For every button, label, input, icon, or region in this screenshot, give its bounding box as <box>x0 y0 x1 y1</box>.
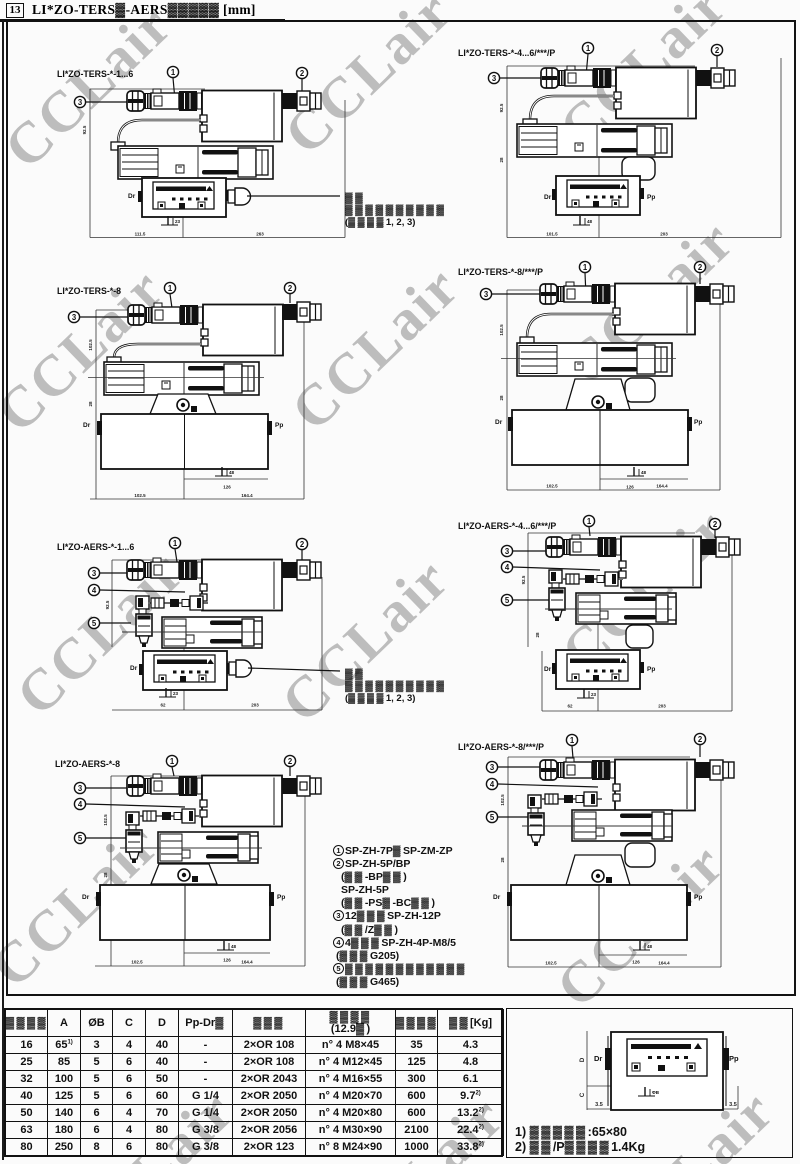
svg-text:Pp: Pp <box>694 894 702 901</box>
svg-text:3: 3 <box>78 784 83 793</box>
svg-text:126: 126 <box>223 485 231 490</box>
svg-text:2: 2 <box>300 69 305 78</box>
svg-text:1: 1 <box>570 736 575 745</box>
svg-text:5: 5 <box>92 619 97 628</box>
svg-text:Dr: Dr <box>82 894 90 901</box>
svg-text:LI*ZO-AERS-*-4...6/***/P: LI*ZO-AERS-*-4...6/***/P <box>458 521 556 531</box>
svg-text:1: 1 <box>583 263 588 272</box>
svg-text:2: 2 <box>698 263 703 272</box>
svg-text:203: 203 <box>251 703 259 708</box>
svg-text:28: 28 <box>500 857 505 863</box>
svg-text:Dr: Dr <box>128 193 136 200</box>
svg-text:Dr: Dr <box>130 665 138 672</box>
svg-text:23: 23 <box>175 219 181 224</box>
svg-text:LI*ZO-AERS-*-8: LI*ZO-AERS-*-8 <box>55 759 120 769</box>
svg-text:102.5: 102.5 <box>499 324 504 336</box>
svg-text:4: 4 <box>92 586 97 595</box>
svg-text:5: 5 <box>490 813 495 822</box>
svg-text:Pp: Pp <box>275 422 283 429</box>
svg-text:2: 2 <box>715 46 720 55</box>
svg-text:1: 1 <box>168 284 173 293</box>
svg-text:92.5: 92.5 <box>82 125 87 134</box>
svg-text:2: 2 <box>713 520 718 529</box>
svg-text:164.4: 164.4 <box>656 484 668 489</box>
svg-text:Dr: Dr <box>495 419 503 426</box>
svg-text:2: 2 <box>288 284 293 293</box>
svg-text:5: 5 <box>78 834 83 843</box>
svg-text:92.5: 92.5 <box>521 575 526 584</box>
svg-text:Pp: Pp <box>277 894 285 901</box>
svg-text:3: 3 <box>492 74 497 83</box>
svg-text:LI*ZO-TERS-*-1...6: LI*ZO-TERS-*-1...6 <box>57 69 133 79</box>
svg-text:92.5: 92.5 <box>499 103 504 112</box>
svg-text:2: 2 <box>300 540 305 549</box>
svg-text:LI*ZO-TERS-*-4...6/***/P: LI*ZO-TERS-*-4...6/***/P <box>458 48 555 58</box>
svg-text:5: 5 <box>505 596 510 605</box>
svg-text:23: 23 <box>173 691 179 696</box>
svg-text:3: 3 <box>92 569 97 578</box>
svg-text:1: 1 <box>586 44 591 53</box>
svg-text:92.5: 92.5 <box>105 600 110 609</box>
svg-text:126: 126 <box>632 960 640 965</box>
svg-text:1: 1 <box>171 68 176 77</box>
svg-text:LI*ZO-TERS-*-8: LI*ZO-TERS-*-8 <box>57 286 121 296</box>
svg-text:102.5: 102.5 <box>546 484 558 489</box>
svg-text:48: 48 <box>231 944 237 949</box>
svg-text:102.5: 102.5 <box>131 960 143 965</box>
svg-text:48: 48 <box>229 470 235 475</box>
svg-text:LI*ZO-AERS-*-1...6: LI*ZO-AERS-*-1...6 <box>57 542 134 552</box>
svg-text:1: 1 <box>170 757 175 766</box>
svg-text:1: 1 <box>587 517 592 526</box>
svg-text:111.5: 111.5 <box>135 232 146 237</box>
svg-text:3: 3 <box>72 313 77 322</box>
svg-text:164.4: 164.4 <box>241 493 253 498</box>
svg-text:Pp: Pp <box>694 419 702 426</box>
svg-text:102.5: 102.5 <box>103 814 108 826</box>
svg-text:48: 48 <box>641 470 647 475</box>
svg-text:LI*ZO-AERS-*-8/***/P: LI*ZO-AERS-*-8/***/P <box>458 742 544 752</box>
svg-text:126: 126 <box>223 958 231 963</box>
svg-text:4: 4 <box>505 563 510 572</box>
svg-text:263: 263 <box>256 232 264 237</box>
svg-text:28: 28 <box>535 632 540 638</box>
svg-text:3: 3 <box>484 290 489 299</box>
svg-text:3: 3 <box>505 547 510 556</box>
svg-text:203: 203 <box>658 704 666 709</box>
svg-text:Dr: Dr <box>83 422 91 429</box>
svg-text:4: 4 <box>78 800 83 809</box>
svg-text:23: 23 <box>591 692 597 697</box>
svg-text:Pp: Pp <box>647 666 655 673</box>
svg-text:48: 48 <box>647 944 653 949</box>
svg-text:102.5: 102.5 <box>88 339 93 351</box>
svg-text:62: 62 <box>567 704 573 709</box>
svg-text:203: 203 <box>660 232 668 237</box>
svg-text:Dr: Dr <box>544 194 552 201</box>
svg-text:Dr: Dr <box>544 666 552 673</box>
svg-text:164.4: 164.4 <box>241 960 253 965</box>
svg-text:28: 28 <box>499 157 504 163</box>
svg-text:62: 62 <box>160 703 166 708</box>
svg-text:164.4: 164.4 <box>658 961 670 966</box>
svg-text:Pp: Pp <box>647 194 655 201</box>
svg-text:4: 4 <box>490 780 495 789</box>
svg-text:LI*ZO-TERS-*-8/***/P: LI*ZO-TERS-*-8/***/P <box>458 267 543 277</box>
svg-text:3: 3 <box>78 98 83 107</box>
svg-text:101.5: 101.5 <box>546 232 558 237</box>
svg-text:102.5: 102.5 <box>500 794 505 806</box>
svg-text:2: 2 <box>698 735 703 744</box>
svg-text:3: 3 <box>490 763 495 772</box>
svg-text:28: 28 <box>103 872 108 878</box>
svg-text:28: 28 <box>88 401 93 407</box>
svg-text:48: 48 <box>587 219 593 224</box>
svg-text:2: 2 <box>288 757 293 766</box>
svg-text:126: 126 <box>626 485 634 490</box>
svg-text:102.5: 102.5 <box>545 961 557 966</box>
svg-text:28: 28 <box>499 395 504 401</box>
svg-text:102.5: 102.5 <box>134 493 146 498</box>
svg-text:Dr: Dr <box>493 894 501 901</box>
svg-text:1: 1 <box>173 539 178 548</box>
